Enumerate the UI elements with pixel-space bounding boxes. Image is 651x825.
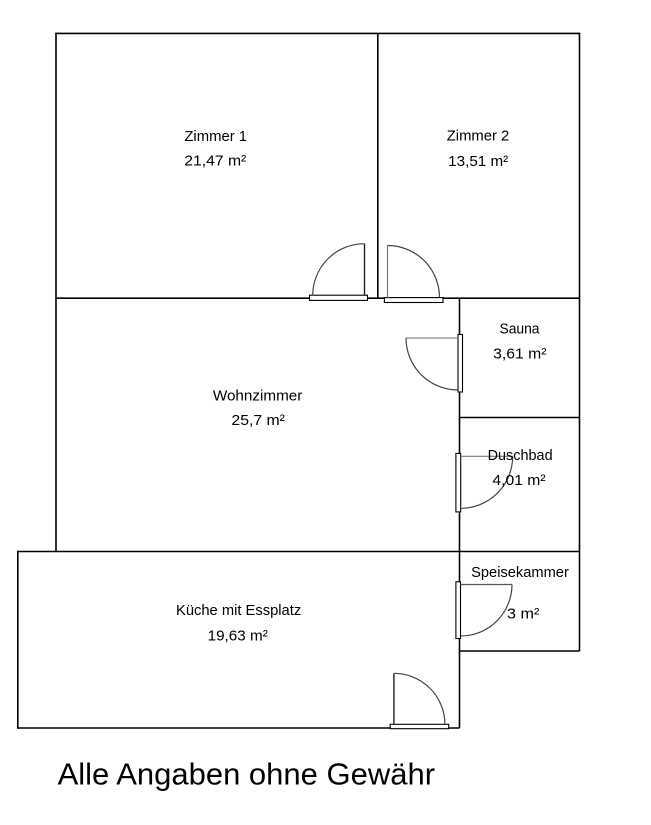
svg-text:Duschbad: Duschbad bbox=[488, 447, 553, 464]
svg-text:Zimmer 1: Zimmer 1 bbox=[184, 128, 247, 145]
svg-text:Speisekammer: Speisekammer bbox=[471, 564, 569, 581]
svg-text:21,47 m²: 21,47 m² bbox=[184, 153, 246, 170]
svg-text:3 m²: 3 m² bbox=[507, 606, 539, 623]
svg-text:19,63 m²: 19,63 m² bbox=[208, 628, 268, 645]
svg-text:Wohnzimmer: Wohnzimmer bbox=[213, 388, 303, 405]
svg-text:25,7 m²: 25,7 m² bbox=[231, 412, 285, 429]
svg-text:Küche mit Essplatz: Küche mit Essplatz bbox=[176, 602, 301, 619]
svg-text:4,01 m²: 4,01 m² bbox=[492, 472, 545, 489]
svg-text:3,61 m²: 3,61 m² bbox=[493, 345, 546, 362]
svg-text:Sauna: Sauna bbox=[500, 321, 541, 338]
svg-text:Alle Angaben ohne Gewähr: Alle Angaben ohne Gewähr bbox=[58, 757, 435, 792]
svg-text:Zimmer 2: Zimmer 2 bbox=[447, 128, 510, 145]
svg-text:13,51 m²: 13,51 m² bbox=[448, 153, 508, 170]
